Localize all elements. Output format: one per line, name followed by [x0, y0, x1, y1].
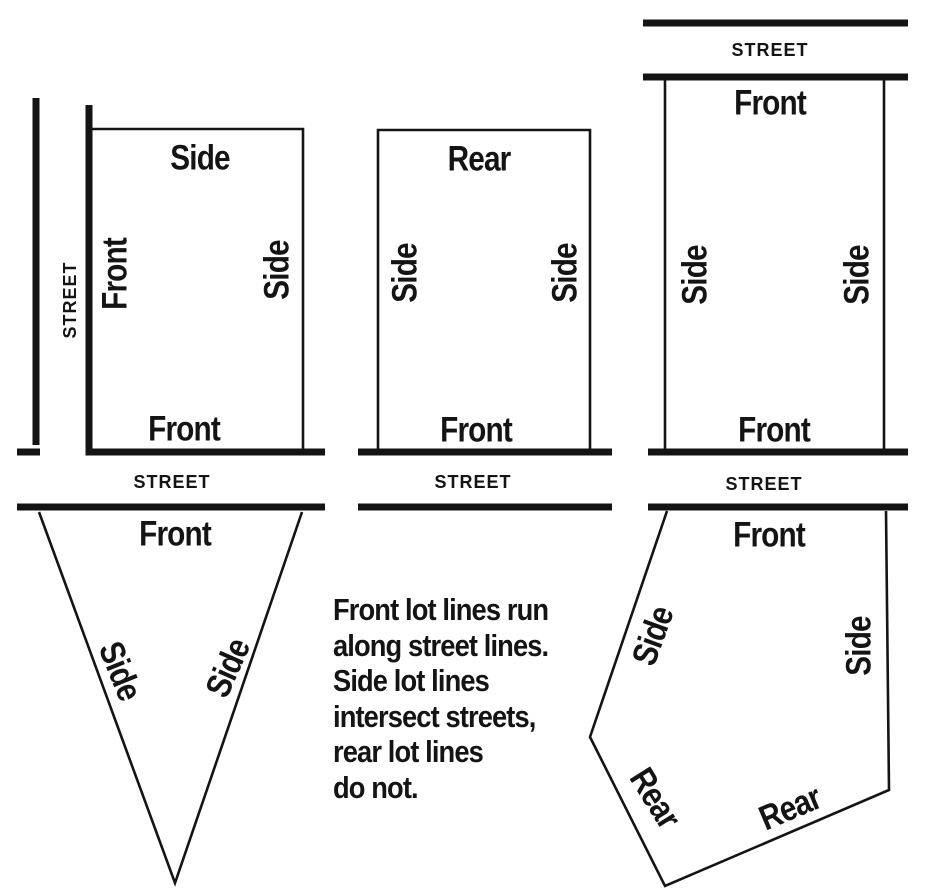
south-left-street-label: STREET: [133, 473, 210, 491]
through-lot-top-label: Front: [734, 86, 806, 121]
caption-line: along street lines.: [333, 628, 548, 664]
through-lot-left-label: Side: [678, 245, 713, 304]
pentagon-lot-top-label: Front: [733, 518, 805, 553]
south-center-street-label: STREET: [434, 473, 511, 491]
interior-lot-left-label: Side: [388, 243, 423, 302]
interior-lot-top-label: Rear: [448, 142, 511, 177]
caption-line: Front lot lines run: [333, 592, 548, 628]
corner-lot-top-label: Side: [170, 141, 229, 176]
pentagon-lot-right-label: Side: [842, 616, 877, 675]
corner-lot-right-label: Side: [260, 240, 295, 299]
corner-lot-bottom-label: Front: [148, 412, 220, 447]
interior-lot-right-label: Side: [548, 243, 583, 302]
lot-lines-diagram: STREET STREET STREET STREET STREET Side …: [0, 0, 927, 893]
caption-line: intersect streets,: [333, 699, 548, 735]
caption: Front lot lines run along street lines. …: [333, 592, 548, 805]
caption-line: Side lot lines: [333, 663, 548, 699]
triangle-lot-top-label: Front: [139, 517, 211, 552]
north-right-street-label: STREET: [731, 41, 808, 59]
through-lot-bottom-label: Front: [738, 413, 810, 448]
caption-line: do not.: [333, 770, 548, 806]
through-lot-right-label: Side: [840, 245, 875, 304]
triangle-lot-outline: [39, 512, 302, 883]
caption-line: rear lot lines: [333, 734, 548, 770]
corner-lot-left-label: Front: [98, 238, 133, 310]
interior-lot-bottom-label: Front: [440, 413, 512, 448]
west-street-label: STREET: [61, 261, 79, 338]
south-right-street-label: STREET: [725, 475, 802, 493]
pentagon-lot-outline: [590, 511, 889, 886]
